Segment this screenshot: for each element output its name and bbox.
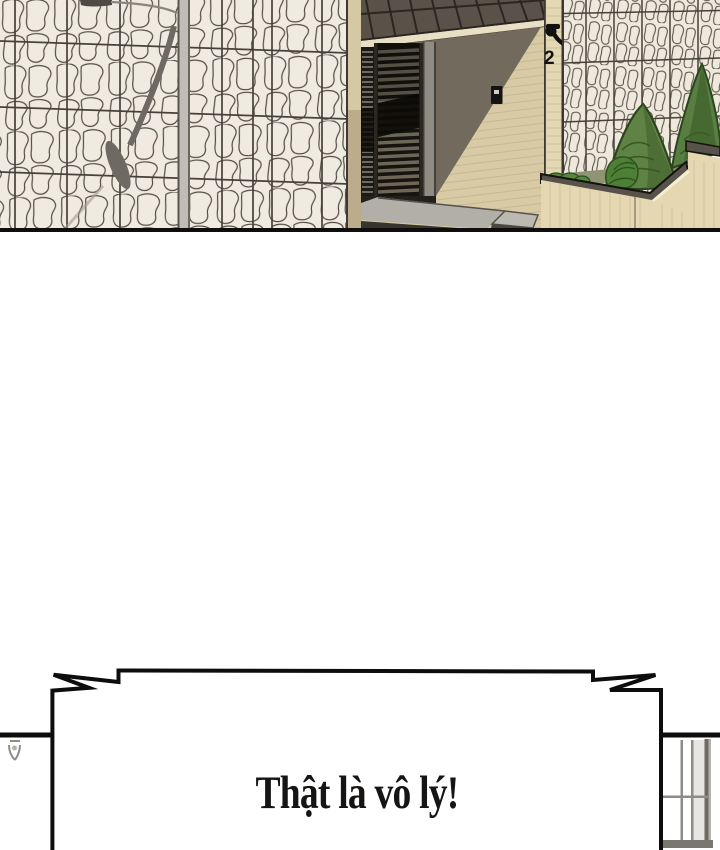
svg-text:2: 2: [544, 48, 555, 69]
